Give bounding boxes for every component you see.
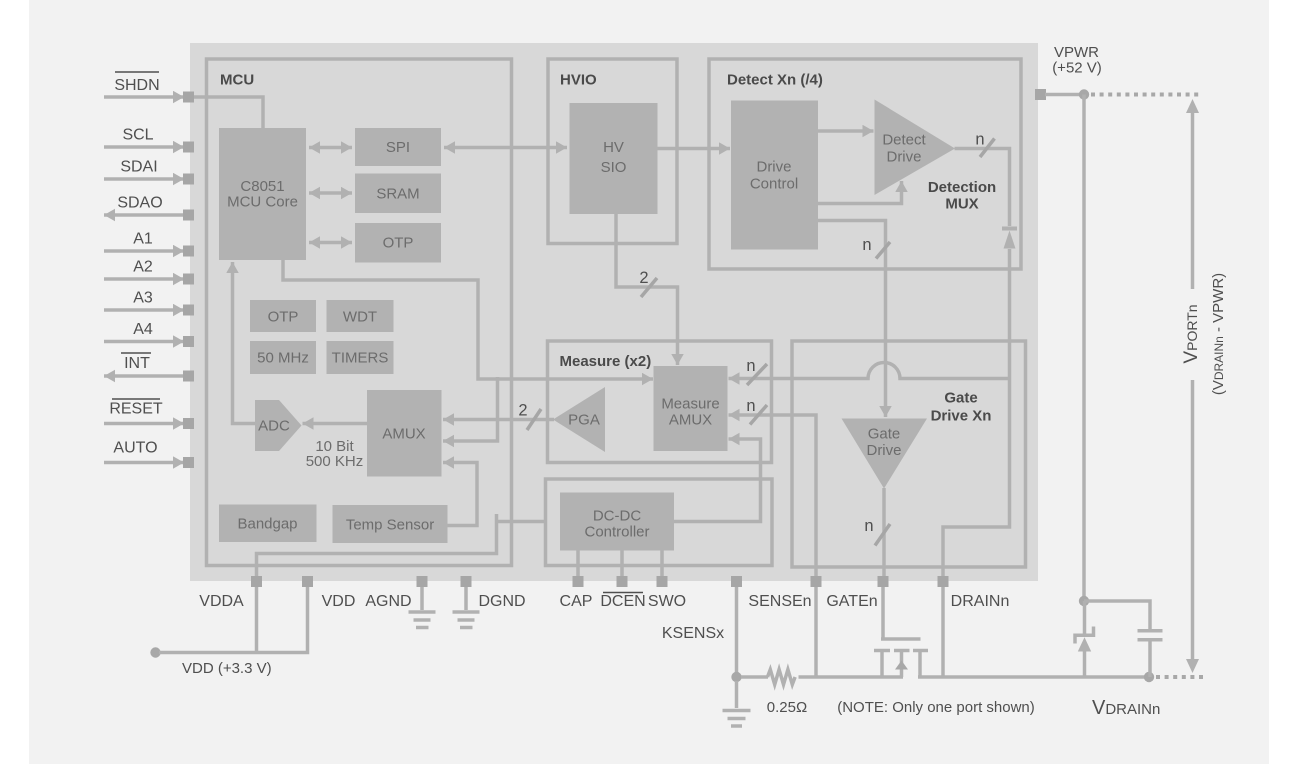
svg-text:DCEN: DCEN	[600, 593, 645, 610]
svg-text:SDAI: SDAI	[120, 159, 157, 176]
svg-text:MUX: MUX	[945, 196, 978, 213]
svg-text:C8051: C8051	[240, 178, 284, 195]
svg-text:Drive: Drive	[886, 149, 921, 166]
svg-text:A1: A1	[133, 231, 153, 248]
svg-text:SIO: SIO	[601, 159, 627, 176]
svg-text:RESET: RESET	[109, 401, 163, 418]
svg-text:2: 2	[518, 402, 527, 420]
svg-text:Measure (x2): Measure (x2)	[560, 353, 652, 370]
svg-text:OTP: OTP	[268, 309, 299, 326]
svg-text:WDT: WDT	[343, 309, 377, 326]
svg-text:VDRAINn: VDRAINn	[1092, 697, 1160, 719]
svg-text:MCU: MCU	[220, 72, 254, 89]
svg-text:500 KHz: 500 KHz	[306, 453, 364, 470]
svg-text:Controller: Controller	[584, 524, 649, 541]
svg-text:SHDN: SHDN	[114, 77, 159, 94]
svg-text:A3: A3	[133, 290, 153, 307]
svg-text:PGA: PGA	[568, 412, 600, 429]
svg-text:VPORTn: VPORTn	[1181, 304, 1202, 363]
svg-text:Detection: Detection	[928, 179, 996, 196]
svg-text:AMUX: AMUX	[669, 412, 712, 429]
svg-text:MCU Core: MCU Core	[227, 194, 298, 211]
svg-text:ADC: ADC	[258, 418, 290, 435]
svg-text:GATEn: GATEn	[826, 593, 877, 610]
svg-text:TIMERS: TIMERS	[332, 350, 389, 367]
svg-text:VPWR: VPWR	[1054, 44, 1099, 61]
svg-text:DGND: DGND	[478, 593, 525, 610]
svg-text:50 MHz: 50 MHz	[257, 350, 309, 367]
svg-text:Control: Control	[750, 176, 798, 193]
svg-text:n: n	[746, 397, 755, 415]
svg-text:Measure: Measure	[661, 396, 719, 413]
svg-text:Detect Xn (/4): Detect Xn (/4)	[727, 72, 823, 89]
svg-text:n: n	[862, 236, 871, 254]
svg-text:HV: HV	[603, 139, 624, 156]
svg-text:VDD: VDD	[322, 593, 356, 610]
svg-text:INT: INT	[124, 355, 150, 372]
svg-text:Temp Sensor: Temp Sensor	[346, 517, 434, 534]
svg-text:SCL: SCL	[122, 127, 153, 144]
svg-text:A4: A4	[133, 321, 153, 338]
svg-text:AGND: AGND	[365, 593, 411, 610]
svg-text:CAP: CAP	[560, 593, 593, 610]
svg-text:KSENSx: KSENSx	[662, 625, 724, 642]
svg-text:VDDA: VDDA	[199, 593, 244, 610]
svg-text:HVIO: HVIO	[560, 72, 597, 89]
svg-text:Gate: Gate	[944, 390, 977, 407]
svg-text:OTP: OTP	[383, 235, 414, 252]
svg-text:VDD (+3.3 V): VDD (+3.3 V)	[182, 660, 272, 677]
svg-text:2: 2	[639, 269, 648, 287]
svg-text:SPI: SPI	[386, 139, 410, 156]
svg-text:(NOTE: Only one port shown): (NOTE: Only one port shown)	[837, 699, 1035, 716]
svg-text:Drive Xn: Drive Xn	[931, 408, 992, 425]
svg-text:(+52 V): (+52 V)	[1052, 60, 1102, 77]
svg-text:0.25Ω: 0.25Ω	[767, 699, 807, 716]
svg-text:AMUX: AMUX	[382, 426, 425, 443]
svg-text:SENSEn: SENSEn	[748, 593, 811, 610]
svg-text:Drive: Drive	[756, 159, 791, 176]
svg-text:DC-DC: DC-DC	[593, 508, 641, 525]
svg-text:Detect: Detect	[882, 132, 926, 149]
svg-text:SWO: SWO	[648, 593, 686, 610]
svg-text:DRAINn: DRAINn	[951, 593, 1010, 610]
svg-text:n: n	[864, 517, 873, 535]
svg-text:Bandgap: Bandgap	[237, 516, 297, 533]
svg-text:AUTO: AUTO	[113, 440, 157, 457]
svg-text:SDAO: SDAO	[117, 195, 162, 212]
svg-text:(VDRAINn - VPWR): (VDRAINn - VPWR)	[1210, 273, 1227, 395]
svg-text:A2: A2	[133, 259, 153, 276]
svg-text:SRAM: SRAM	[376, 186, 419, 203]
svg-text:n: n	[746, 357, 755, 375]
svg-text:n: n	[975, 131, 984, 149]
svg-text:Gate: Gate	[868, 426, 901, 443]
svg-text:Drive: Drive	[866, 442, 901, 459]
